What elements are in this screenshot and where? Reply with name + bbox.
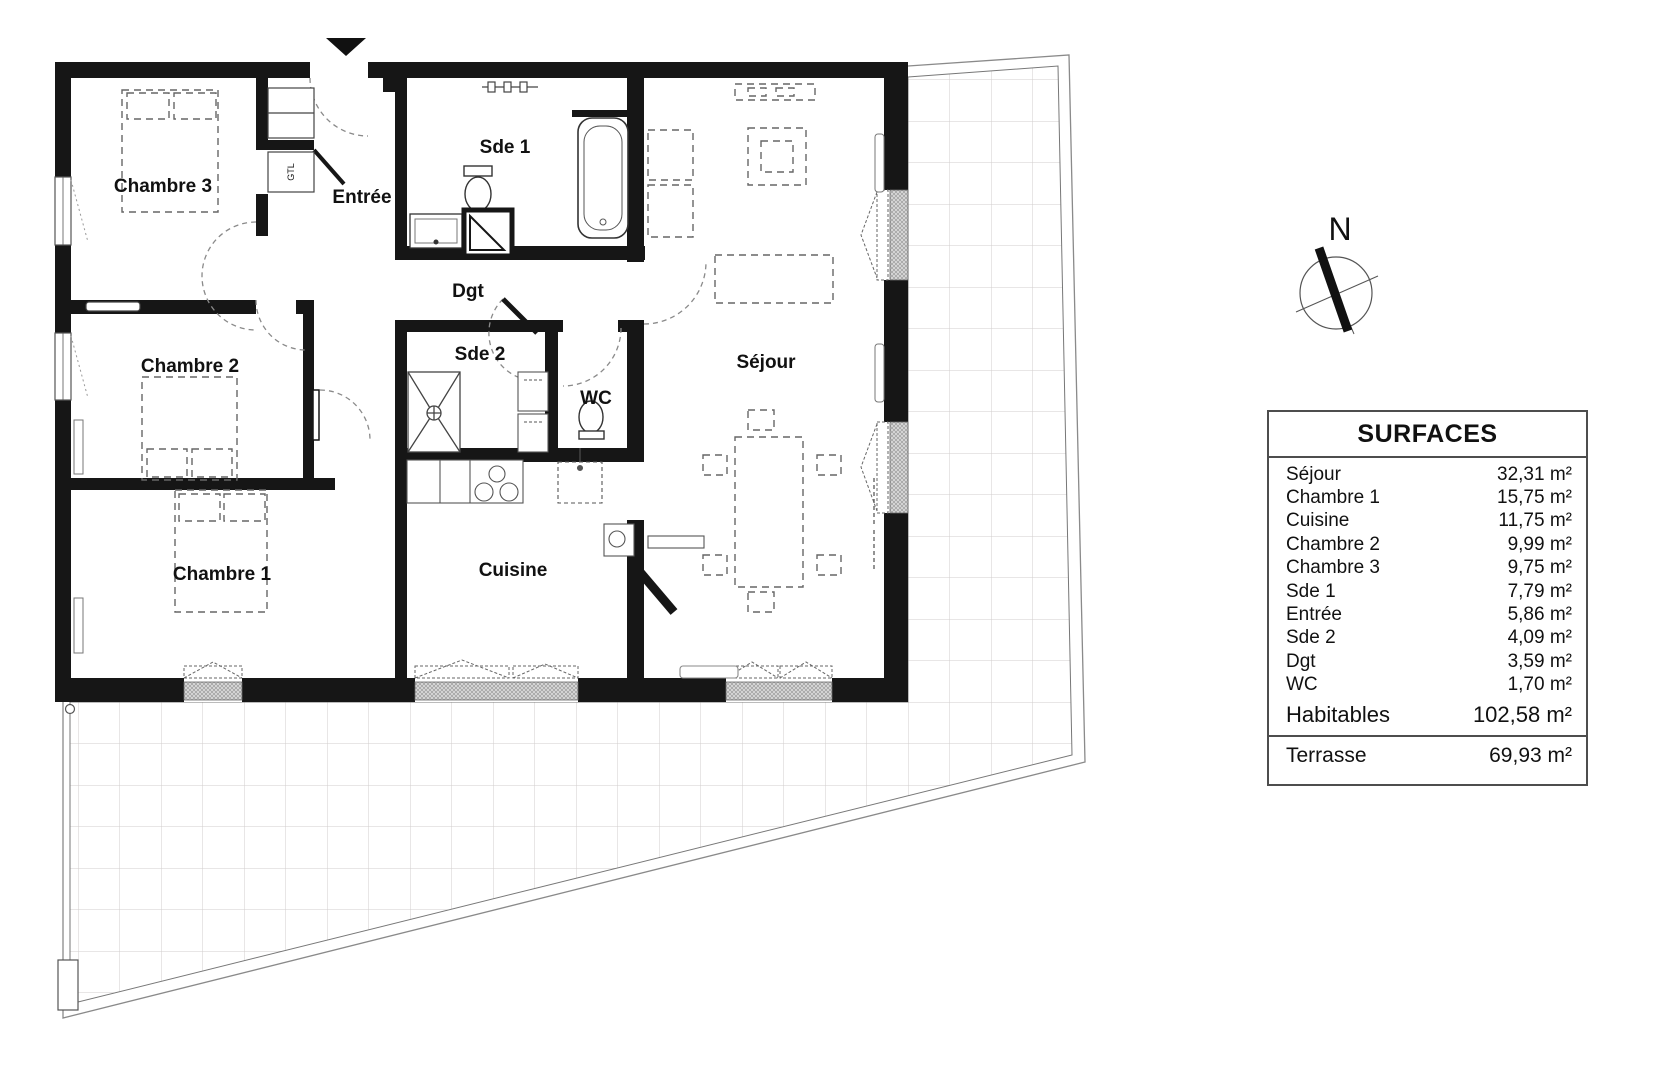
room-label-sejour: Séjour (736, 352, 796, 373)
room-label-entree: Entrée (332, 187, 391, 208)
table-row: Chambre 3 9,75 m² (1269, 557, 1586, 580)
row-value: 32,31 m² (1497, 464, 1572, 486)
row-label: Habitables (1286, 702, 1390, 728)
sejour-furniture (648, 84, 874, 612)
gtl-label: GTL (286, 163, 296, 181)
room-label-wc: WC (580, 388, 612, 409)
sideboard (648, 536, 704, 548)
surfaces-title: SURFACES (1269, 412, 1586, 458)
dining-table-set (703, 410, 841, 612)
row-value: 4,09 m² (1508, 627, 1572, 649)
surfaces-table: SURFACES Séjour 32,31 m² Chambre 1 15,75… (1267, 410, 1588, 786)
room-label-cuisine: Cuisine (479, 560, 548, 581)
room-label-chambre2: Chambre 2 (141, 356, 239, 377)
towel-rail (482, 82, 538, 92)
table-row: Séjour 32,31 m² (1269, 463, 1586, 486)
compass: N (1296, 211, 1378, 334)
row-label: Sde 1 (1286, 581, 1336, 603)
bed-chambre1 (175, 490, 267, 612)
table-row: Chambre 1 15,75 m² (1269, 486, 1586, 509)
table-row: Cuisine 11,75 m² (1269, 510, 1586, 533)
walls (55, 62, 908, 702)
shower (408, 372, 460, 452)
terrace-pillar (58, 960, 78, 1010)
row-label: Cuisine (1286, 510, 1349, 532)
armchair (648, 185, 693, 237)
row-label: Sde 2 (1286, 627, 1336, 649)
radiator (74, 598, 83, 653)
bedroom-furniture (122, 90, 267, 612)
room-label-chambre1: Chambre 1 (173, 564, 272, 585)
sejour-console-bottom (680, 666, 738, 678)
entrance-arrow-icon (326, 38, 366, 56)
parked-shutter (875, 344, 884, 402)
bed-chambre2 (142, 377, 237, 480)
row-label: Chambre 1 (1286, 487, 1380, 509)
window (726, 662, 832, 702)
table-row: Sde 1 7,79 m² (1269, 580, 1586, 603)
row-value: 9,99 m² (1508, 534, 1572, 556)
habitables-row: Habitables 102,58 m² (1269, 699, 1586, 731)
row-value: 102,58 m² (1473, 702, 1572, 728)
kitchen-fixtures (407, 448, 704, 556)
sink-vanity (410, 214, 462, 248)
room-label-sde2: Sde 2 (455, 344, 506, 365)
window (415, 660, 578, 702)
window (861, 422, 908, 513)
room-label-sde1: Sde 1 (480, 137, 531, 158)
console (735, 84, 815, 100)
table-row: Chambre 2 9,99 m² (1269, 533, 1586, 556)
sink-column (604, 524, 634, 556)
row-label: Séjour (1286, 464, 1341, 486)
armchair (648, 130, 693, 180)
row-value: 9,75 m² (1508, 557, 1572, 579)
row-value: 1,70 m² (1508, 674, 1572, 696)
angled-wall (640, 572, 674, 612)
room-label-dgt: Dgt (452, 281, 484, 302)
railing-post (66, 705, 75, 714)
sofa (715, 255, 833, 303)
floor-plan-page: GTL (0, 0, 1673, 1080)
row-value: 15,75 m² (1497, 487, 1572, 509)
parked-shutter (875, 134, 884, 192)
row-label: Entrée (1286, 604, 1342, 626)
row-value: 69,93 m² (1489, 744, 1572, 768)
compass-north-label: N (1328, 211, 1351, 247)
row-value: 3,59 m² (1508, 651, 1572, 673)
cabinet (464, 210, 512, 256)
table-row: Sde 2 4,09 m² (1269, 627, 1586, 650)
row-label: Terrasse (1286, 744, 1367, 768)
window (184, 662, 242, 702)
counter (407, 460, 523, 503)
side-table (748, 128, 806, 185)
compass-needle-icon (1319, 248, 1348, 331)
terrace-floor-grid (70, 66, 1072, 1004)
terrasse-row: Terrasse 69,93 m² (1269, 737, 1586, 775)
row-value: 5,86 m² (1508, 604, 1572, 626)
terrace (58, 55, 1085, 1018)
toilet (464, 166, 492, 211)
table-row: WC 1,70 m² (1269, 674, 1586, 697)
radiator (74, 420, 83, 474)
row-label: Dgt (1286, 651, 1316, 673)
room-labels: Chambre 3 Entrée Sde 1 Dgt Sde 2 WC Séjo… (114, 137, 796, 585)
table-row: Entrée 5,86 m² (1269, 603, 1586, 626)
row-value: 7,79 m² (1508, 581, 1572, 603)
window (861, 190, 908, 280)
room-label-chambre3: Chambre 3 (114, 176, 212, 197)
row-label: Chambre 3 (1286, 557, 1380, 579)
washer-dryer (518, 372, 548, 452)
table-row: Dgt 3,59 m² (1269, 650, 1586, 673)
surfaces-rows: Séjour 32,31 m² Chambre 1 15,75 m² Cuisi… (1269, 458, 1586, 731)
row-label: Chambre 2 (1286, 534, 1380, 556)
row-value: 11,75 m² (1498, 510, 1572, 532)
sde1-fixtures (410, 82, 632, 256)
row-label: WC (1286, 674, 1318, 696)
sde2-fixtures (408, 372, 604, 452)
